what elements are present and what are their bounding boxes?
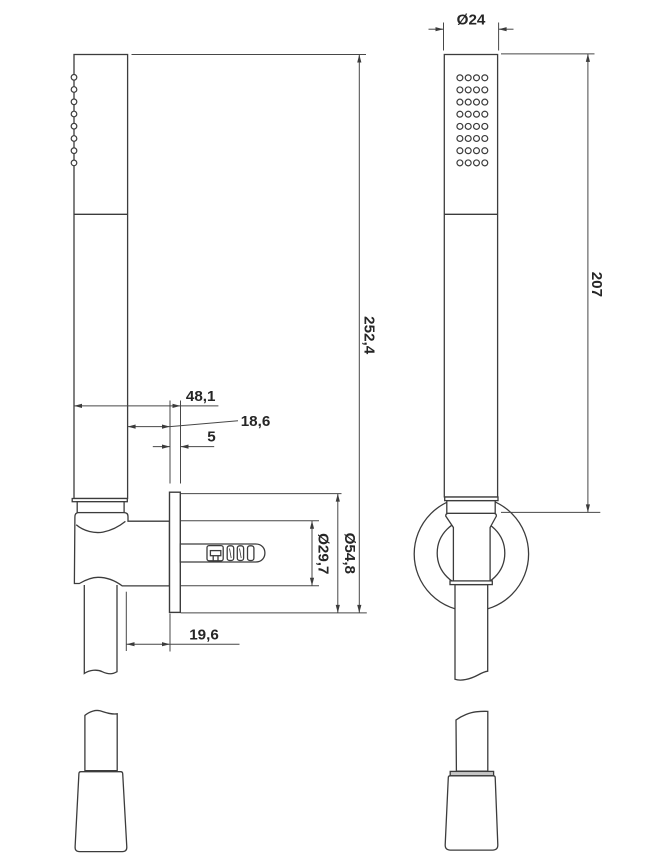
svg-text:19,6: 19,6 — [189, 627, 219, 644]
svg-text:207: 207 — [588, 272, 605, 297]
svg-text:Ø29,7: Ø29,7 — [314, 533, 331, 574]
svg-text:18,6: 18,6 — [241, 413, 271, 430]
svg-text:5: 5 — [207, 429, 216, 446]
svg-text:48,1: 48,1 — [186, 388, 216, 405]
svg-text:Ø54,8: Ø54,8 — [341, 533, 358, 574]
svg-text:252,4: 252,4 — [360, 316, 377, 355]
svg-text:Ø24: Ø24 — [457, 11, 486, 28]
